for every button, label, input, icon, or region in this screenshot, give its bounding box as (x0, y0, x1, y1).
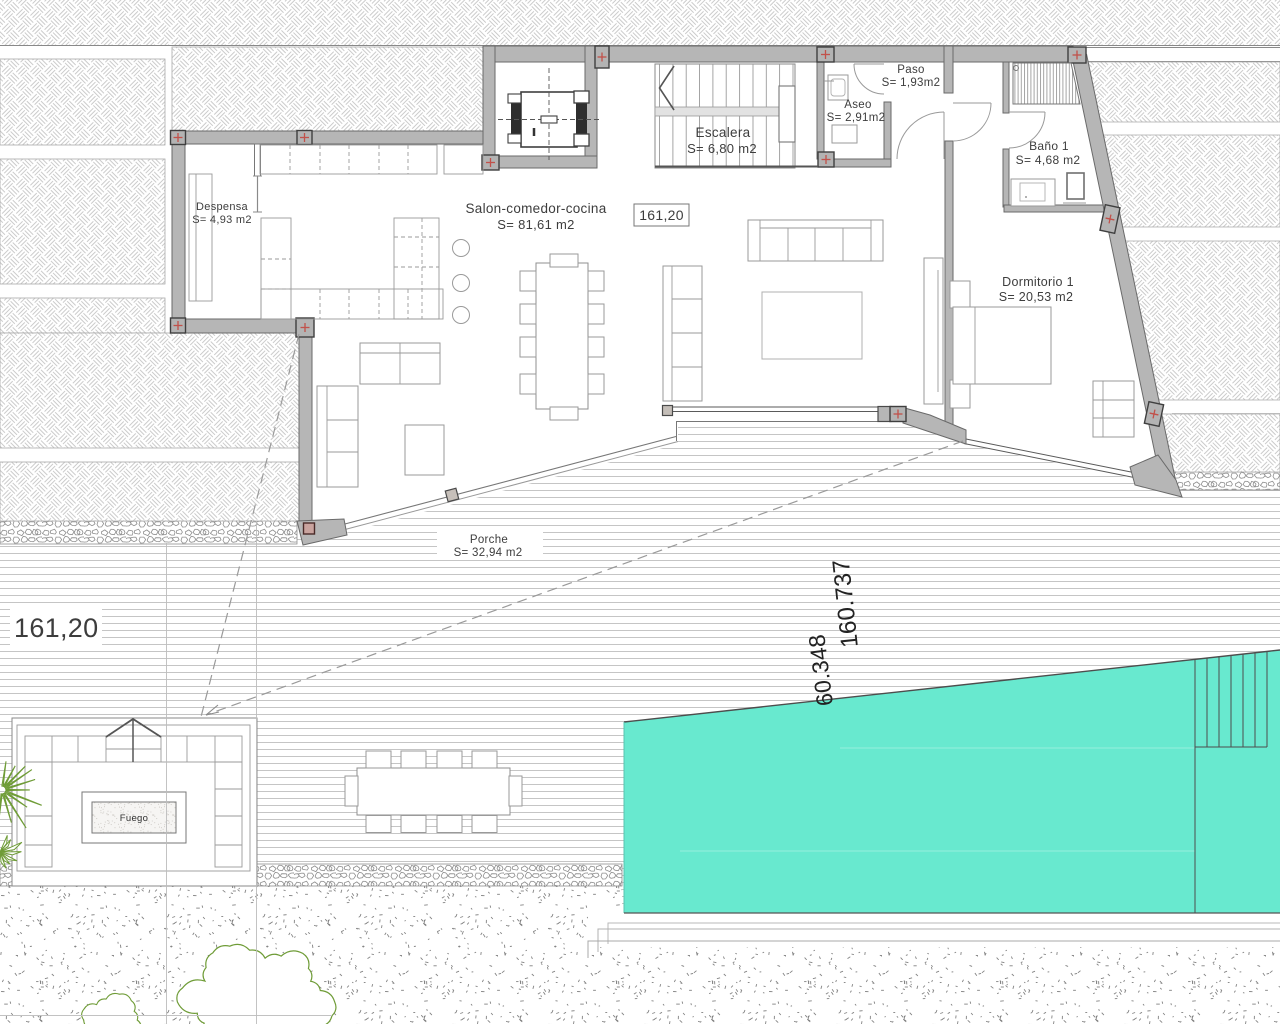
svg-text:S= 1,93m2: S= 1,93m2 (882, 77, 941, 89)
svg-text:S= 6,80 m2: S= 6,80 m2 (687, 141, 757, 156)
svg-text:S= 81,61 m2: S= 81,61 m2 (497, 217, 574, 232)
svg-text:S= 32,94 m2: S= 32,94 m2 (454, 547, 523, 559)
svg-text:S= 4,93 m2: S= 4,93 m2 (192, 214, 252, 226)
svg-text:Escalera: Escalera (696, 125, 751, 140)
svg-text:S= 4,68 m2: S= 4,68 m2 (1016, 153, 1081, 167)
svg-text:Despensa: Despensa (196, 201, 249, 213)
svg-text:Dormitorio 1: Dormitorio 1 (1002, 275, 1074, 289)
svg-text:Baño 1: Baño 1 (1029, 139, 1069, 153)
svg-text:S= 20,53 m2: S= 20,53 m2 (999, 290, 1074, 304)
svg-text:161,20: 161,20 (14, 613, 98, 643)
svg-text:Salon-comedor-cocina: Salon-comedor-cocina (465, 201, 606, 216)
svg-text:S= 2,91m2: S= 2,91m2 (827, 112, 886, 124)
svg-text:Aseo: Aseo (844, 99, 871, 111)
svg-text:Paso: Paso (897, 64, 924, 76)
svg-text:Fuego: Fuego (120, 813, 148, 824)
svg-text:161,20: 161,20 (639, 207, 684, 223)
svg-text:Porche: Porche (470, 534, 508, 546)
